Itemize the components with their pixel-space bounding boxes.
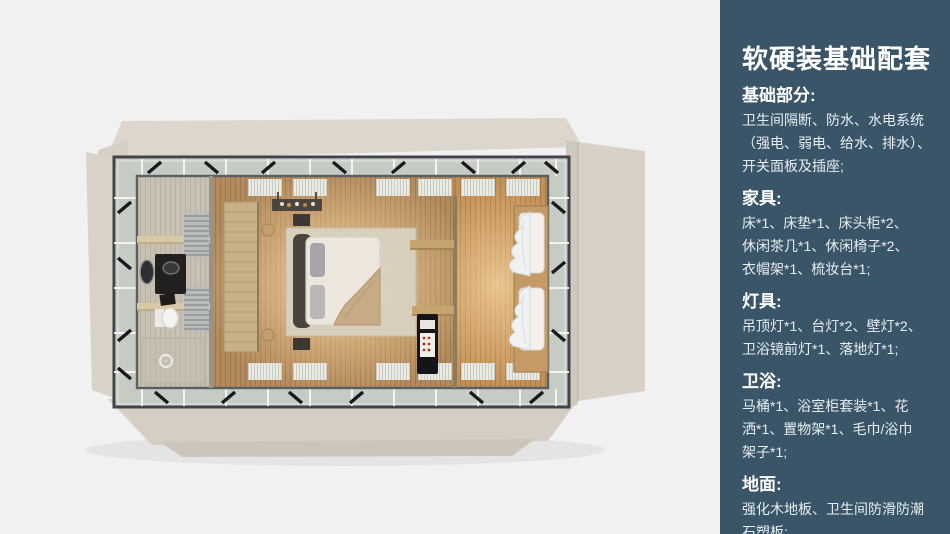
section-bathroom-line: 马桶*1、浴室柜套装*1、花 [742, 395, 936, 418]
basket-bottom [262, 329, 274, 341]
section-lighting-heading: 灯具: [742, 292, 936, 312]
toilet-bowl [162, 308, 178, 328]
roof-panel-top [106, 118, 583, 160]
section-basics: 基础部分: 卫生间隔断、防水、水电系统 （强电、弱电、给水、排水）、 开关面板及… [742, 86, 936, 178]
section-basics-line: （强电、弱电、给水、排水）、 [742, 132, 936, 155]
section-floor: 地面: 强化木地板、卫生间防滑防潮 石塑板; [742, 475, 936, 534]
section-furniture-line: 休闲茶几*1、休闲椅子*2、 [742, 235, 936, 258]
section-lighting-line: 吊顶灯*1、台灯*2、壁灯*2、 [742, 315, 936, 338]
floorplan-render [0, 0, 720, 534]
vanity-stool [159, 293, 175, 306]
section-bathroom-heading: 卫浴: [742, 372, 936, 392]
section-floor-line: 石塑板; [742, 521, 936, 534]
section-floor-line: 强化木地板、卫生间防滑防潮 [742, 498, 936, 521]
section-bathroom-line: 架子*1; [742, 441, 936, 464]
section-basics-line: 卫生间隔断、防水、水电系统 [742, 109, 936, 132]
nightstand-bottom [293, 338, 310, 350]
section-lighting-line: 卫浴镜前灯*1、落地灯*1; [742, 338, 936, 361]
bathroom-partition-wall [209, 176, 213, 388]
vanity-mirror [140, 260, 154, 284]
section-bathroom: 卫浴: 马桶*1、浴室柜套装*1、花 洒*1、置物架*1、毛巾/浴巾 架子*1; [742, 372, 936, 464]
section-furniture-heading: 家具: [742, 189, 936, 209]
wall-panel-bottom-step [160, 439, 535, 457]
section-basics-line: 开关面板及插座; [742, 155, 936, 178]
section-furniture: 家具: 床*1、床垫*1、床头柜*2、 休闲茶几*1、休闲椅子*2、 衣帽架*1… [742, 189, 936, 281]
nightstand-top [293, 214, 310, 226]
slide: 软硬装基础配套 基础部分: 卫生间隔断、防水、水电系统 （强电、弱电、给水、排水… [0, 0, 950, 534]
pillow-bottom [310, 285, 325, 319]
bunk-and-curtains [509, 206, 548, 372]
closet-partition-wall [453, 196, 457, 388]
towel-radiator-lower [184, 287, 209, 331]
section-furniture-line: 床*1、床垫*1、床头柜*2、 [742, 212, 936, 235]
towel-radiator-upper [184, 213, 209, 257]
door-panel-right [578, 142, 645, 401]
vanity-sink [163, 262, 179, 274]
section-lighting: 灯具: 吊顶灯*1、台灯*2、壁灯*2、 卫浴镜前灯*1、落地灯*1; [742, 292, 936, 361]
wardrobe-cabinet [224, 202, 258, 352]
floorplan-svg [0, 0, 720, 534]
section-furniture-line: 衣帽架*1、梳妆台*1; [742, 258, 936, 281]
basket-top [262, 224, 274, 236]
section-bathroom-line: 洒*1、置物架*1、毛巾/浴巾 [742, 418, 936, 441]
sidebar-title: 软硬装基础配套 [742, 42, 936, 76]
pillow-top [310, 243, 325, 277]
section-basics-heading: 基础部分: [742, 86, 936, 106]
info-sidebar: 软硬装基础配套 基础部分: 卫生间隔断、防水、水电系统 （强电、弱电、给水、排水… [720, 0, 950, 534]
section-floor-heading: 地面: [742, 475, 936, 495]
display-cabinet [417, 314, 438, 374]
wall-panel-left [86, 152, 114, 398]
